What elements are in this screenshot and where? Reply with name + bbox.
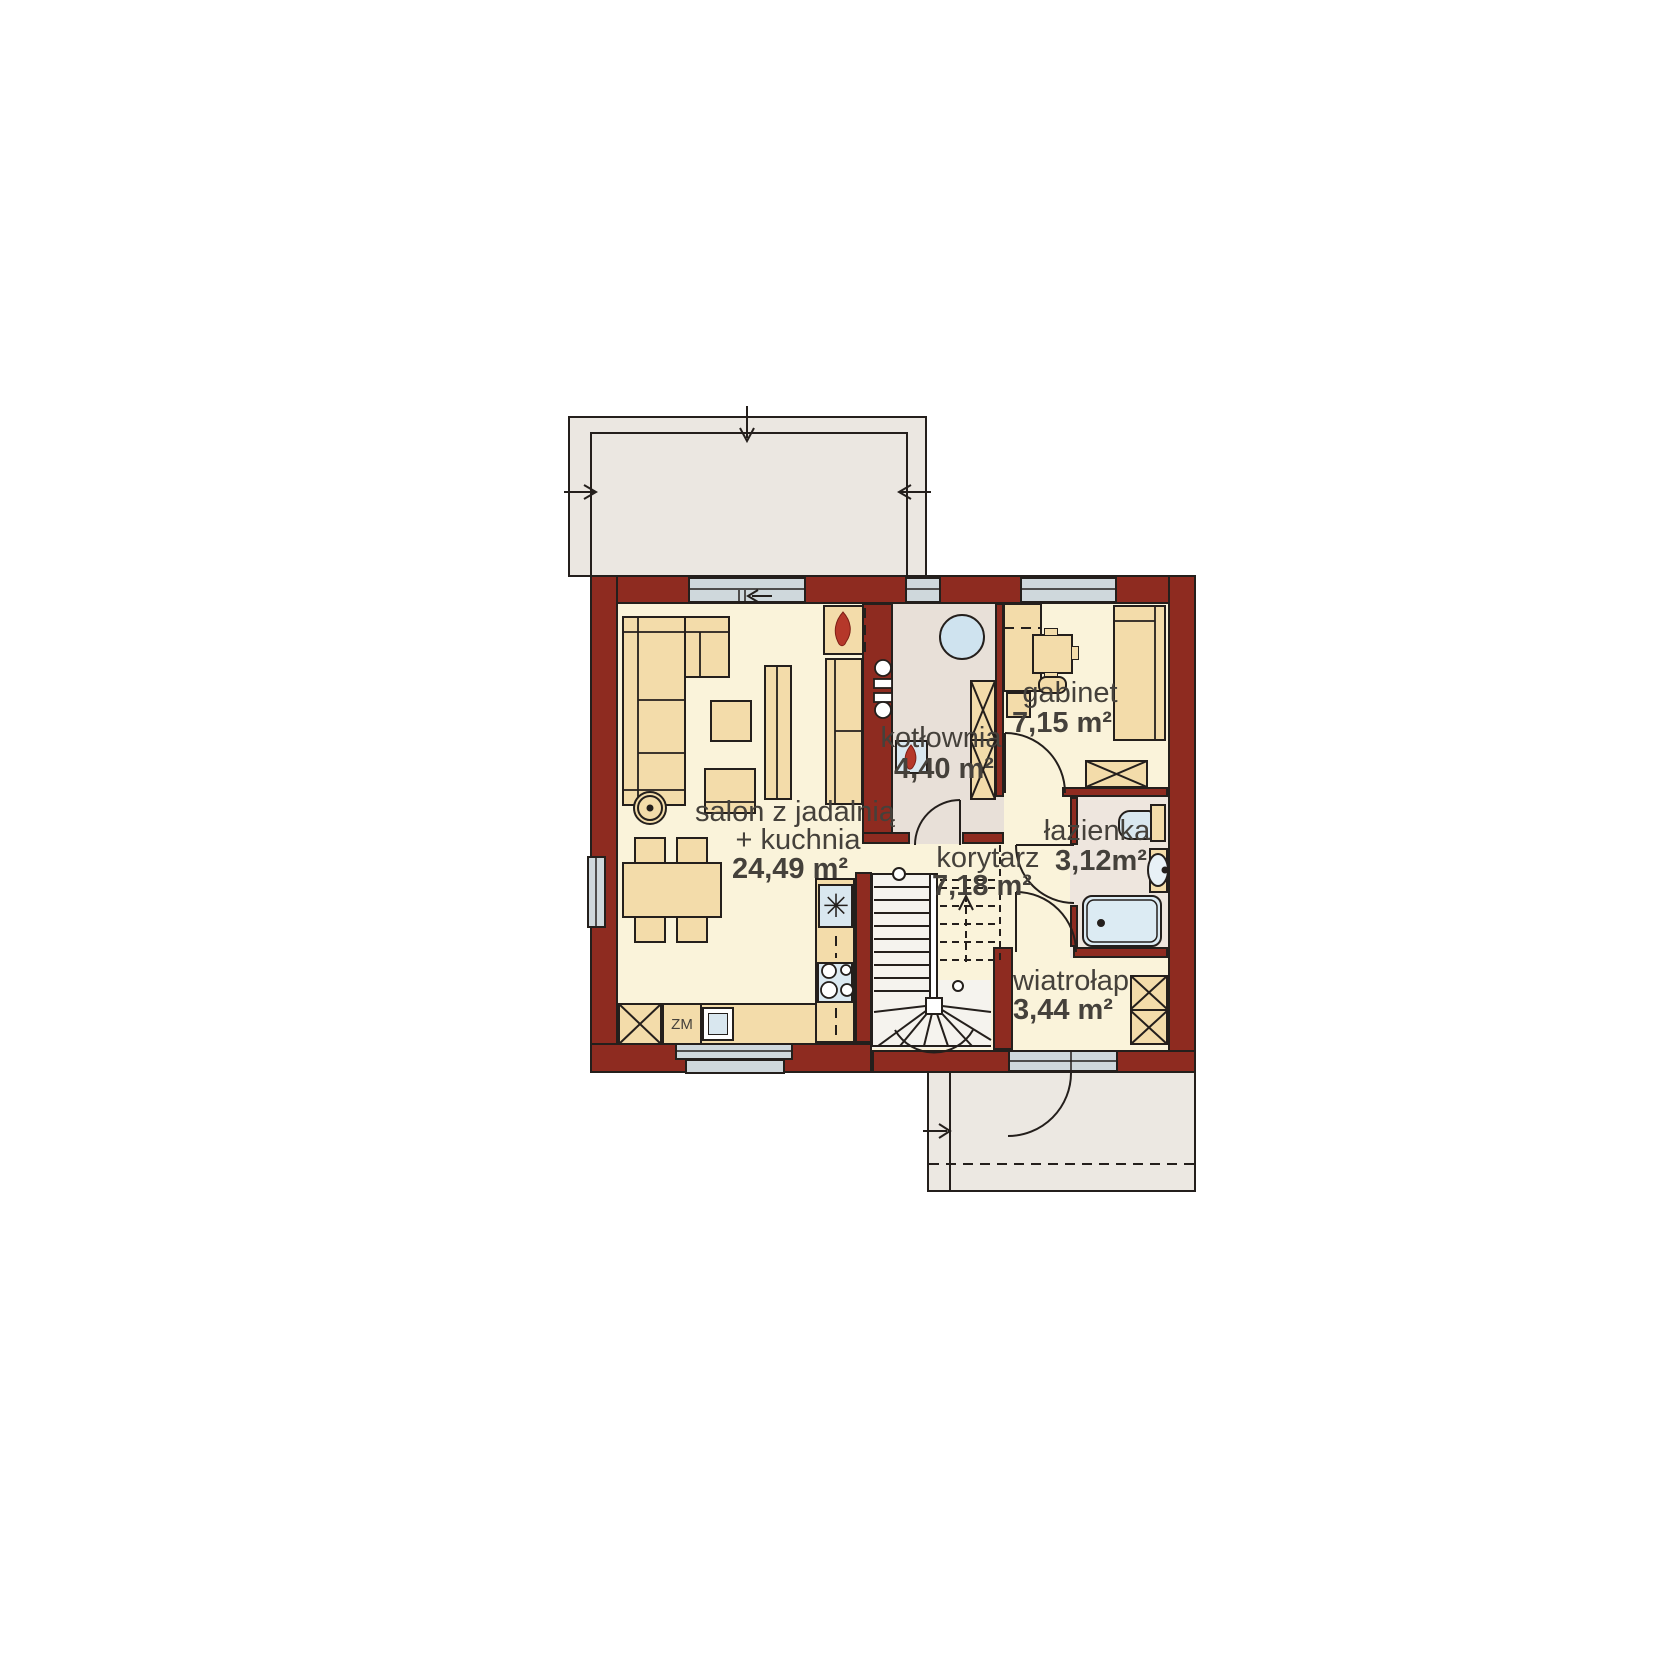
dining-chair bbox=[634, 915, 666, 943]
window-kitchen-sill bbox=[685, 1059, 785, 1074]
office-bed bbox=[1113, 605, 1166, 741]
washbasin-counter bbox=[1149, 848, 1168, 893]
floor-plan-page: { "plan": { "rooms": { "salon": { "line1… bbox=[0, 0, 1680, 1680]
label-gabinet-area: 7,15 m² bbox=[1012, 709, 1112, 738]
oven-door bbox=[708, 1013, 728, 1035]
window-boiler bbox=[905, 577, 941, 603]
label-korytarz-area: 7,18 m² bbox=[932, 872, 1032, 901]
cooktop bbox=[817, 962, 853, 1003]
fireplace bbox=[823, 605, 864, 655]
label-dishwasher: ZM bbox=[662, 1016, 702, 1033]
label-lazienka: łazienka bbox=[1044, 817, 1150, 846]
wall-left bbox=[590, 575, 618, 1073]
kitchen-sink bbox=[818, 884, 853, 928]
window-living-slider bbox=[688, 577, 806, 603]
bathtub bbox=[1082, 895, 1162, 947]
desk bbox=[1032, 634, 1073, 674]
boiler-tank bbox=[939, 614, 985, 660]
oven bbox=[702, 1007, 734, 1041]
label-gabinet: gabinet bbox=[1022, 679, 1117, 708]
wall-kitchen-stair bbox=[855, 872, 872, 1043]
desk-tab bbox=[1071, 646, 1079, 660]
window-office bbox=[1020, 577, 1117, 603]
wall-bath-left-b bbox=[1070, 905, 1078, 947]
entrance-door-sill bbox=[1008, 1050, 1118, 1072]
wall-right bbox=[1168, 575, 1196, 1073]
wall-office-bottom bbox=[1062, 787, 1168, 797]
dining-chair bbox=[634, 837, 666, 865]
coffee-table bbox=[710, 700, 752, 742]
label-wiatrolap: wiatrołap bbox=[1013, 967, 1129, 996]
entrance-porch bbox=[927, 1073, 1196, 1192]
fridge bbox=[618, 1003, 662, 1045]
window-kitchen bbox=[675, 1043, 793, 1060]
label-kotlownia: kotłownia bbox=[881, 724, 1002, 753]
wall-stair-right bbox=[993, 947, 1013, 1050]
label-salon-line1: salon z jadalnią bbox=[695, 798, 895, 827]
wall-boiler-office bbox=[995, 603, 1004, 797]
shelf-cabinet bbox=[825, 658, 863, 805]
dining-table bbox=[622, 862, 722, 918]
terrace-top-inner-line bbox=[590, 432, 908, 577]
floor-plan: ✳ salon z jadalnią + kuchnia 24,49 m² ko… bbox=[0, 0, 1680, 1680]
dining-chair bbox=[676, 915, 708, 943]
wall-bath-vestibule bbox=[1073, 947, 1168, 958]
tv-cabinet bbox=[764, 665, 792, 800]
desk-tab bbox=[1044, 628, 1058, 636]
label-wiatrolap-area: 3,44 m² bbox=[1013, 996, 1113, 1025]
label-korytarz: korytarz bbox=[936, 844, 1039, 873]
label-salon-area: 24,49 m² bbox=[732, 855, 848, 884]
label-lazienka-area: 3,12m² bbox=[1055, 847, 1147, 876]
office-dresser bbox=[1085, 760, 1148, 788]
toilet-tank bbox=[1150, 804, 1166, 842]
vestibule-wardrobe bbox=[1130, 975, 1168, 1045]
sofa-arm bbox=[622, 616, 686, 806]
label-salon-line2: + kuchnia bbox=[736, 826, 861, 855]
label-kotlownia-area: 4,40 m² bbox=[894, 755, 994, 784]
wall-boiler-bottom-a bbox=[862, 832, 910, 844]
stairwell-floor-winders bbox=[872, 980, 991, 1048]
dining-chair bbox=[676, 837, 708, 865]
window-dining bbox=[587, 856, 606, 928]
